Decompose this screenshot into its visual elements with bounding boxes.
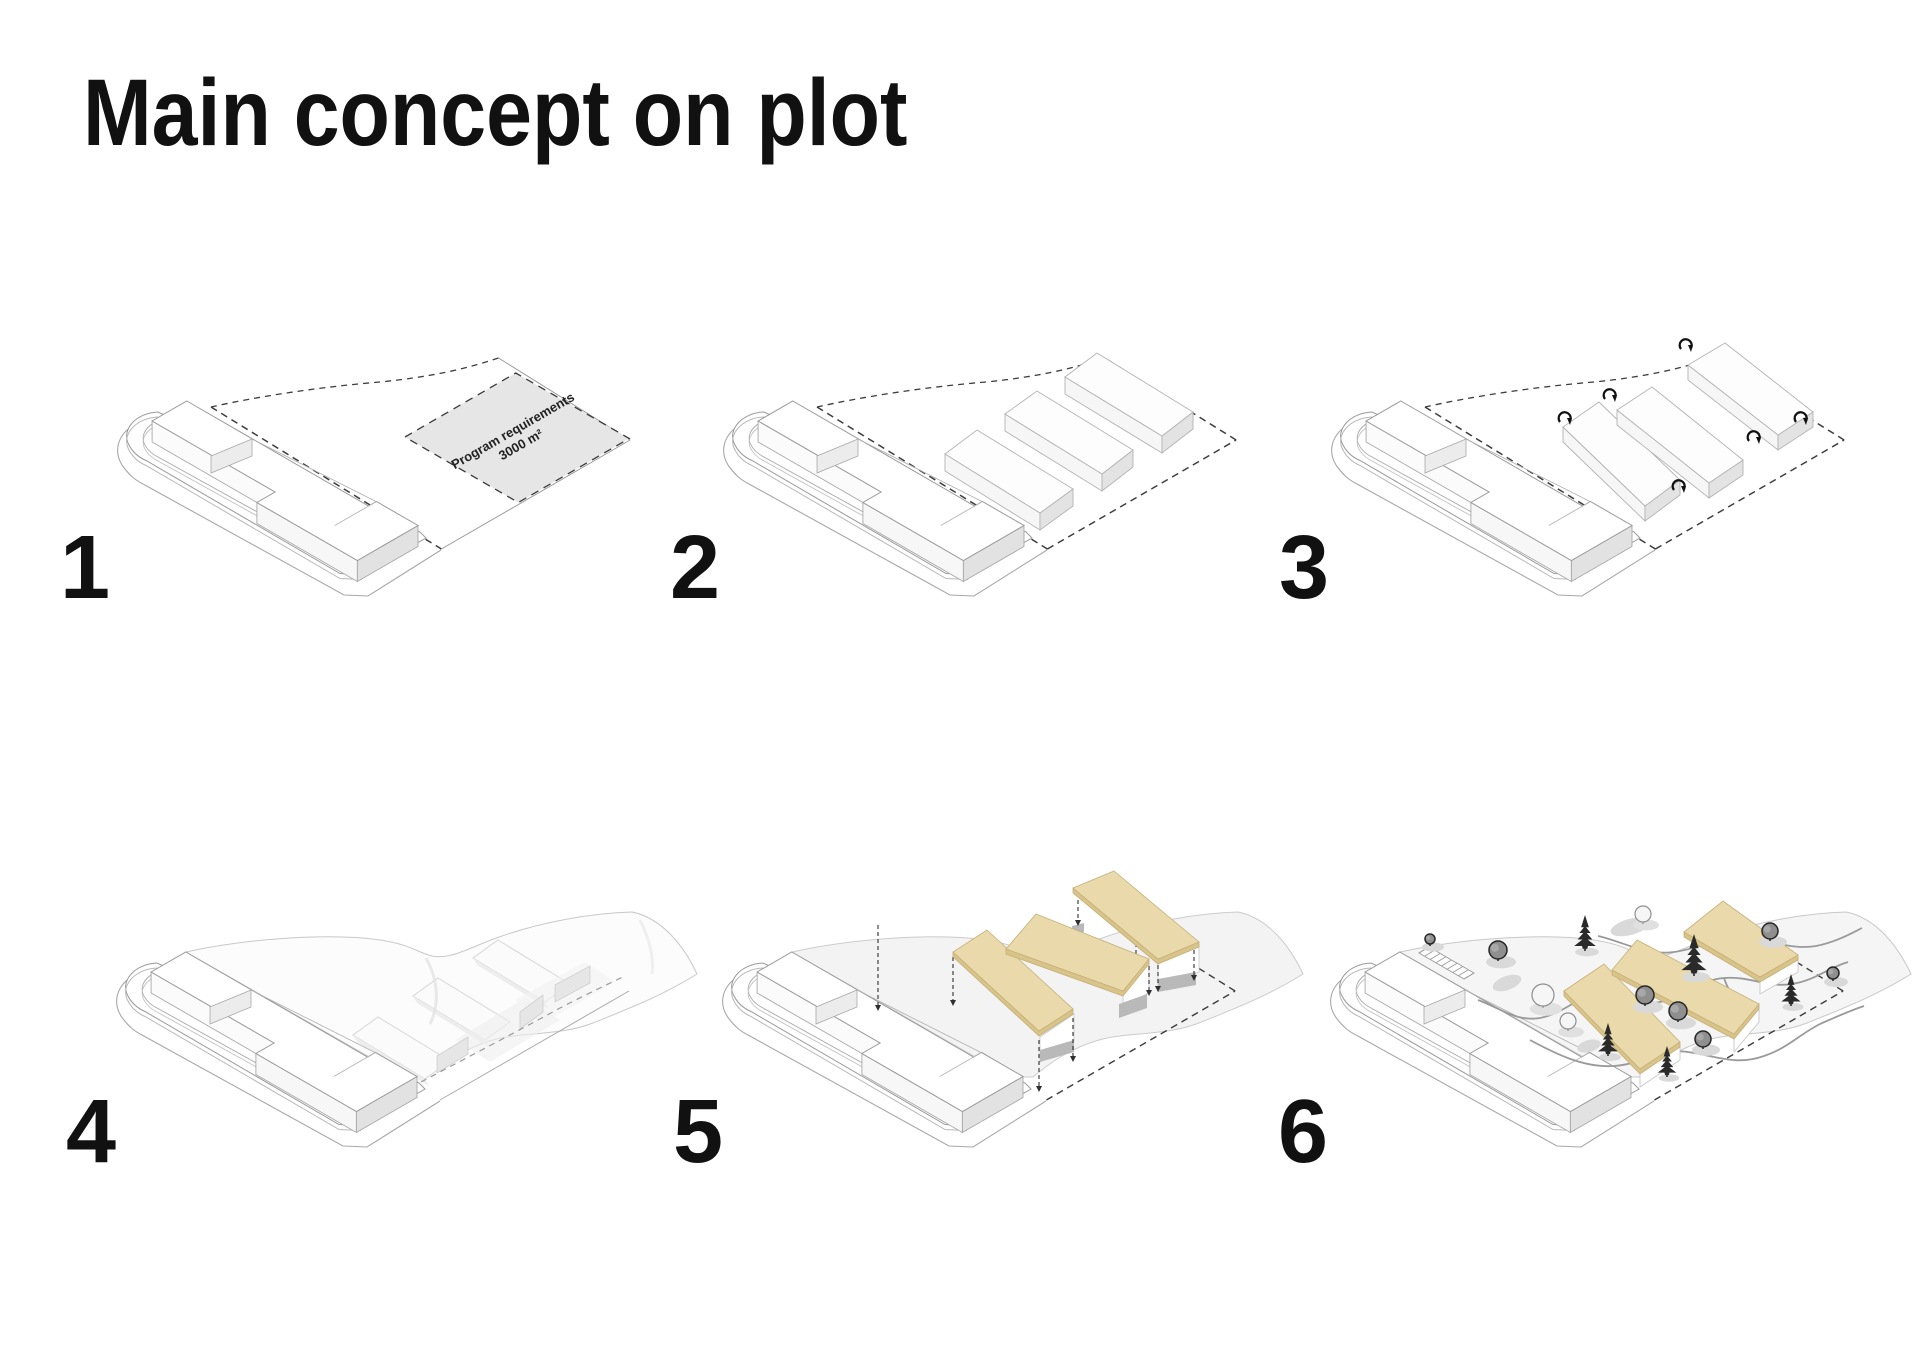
svg-text:3: 3 — [1279, 518, 1329, 618]
svg-text:6: 6 — [1278, 1082, 1328, 1182]
svg-text:1: 1 — [60, 518, 110, 618]
svg-text:Main concept on plot: Main concept on plot — [83, 58, 907, 165]
svg-text:2: 2 — [670, 518, 720, 618]
svg-text:4: 4 — [66, 1082, 116, 1182]
svg-text:5: 5 — [673, 1082, 723, 1182]
